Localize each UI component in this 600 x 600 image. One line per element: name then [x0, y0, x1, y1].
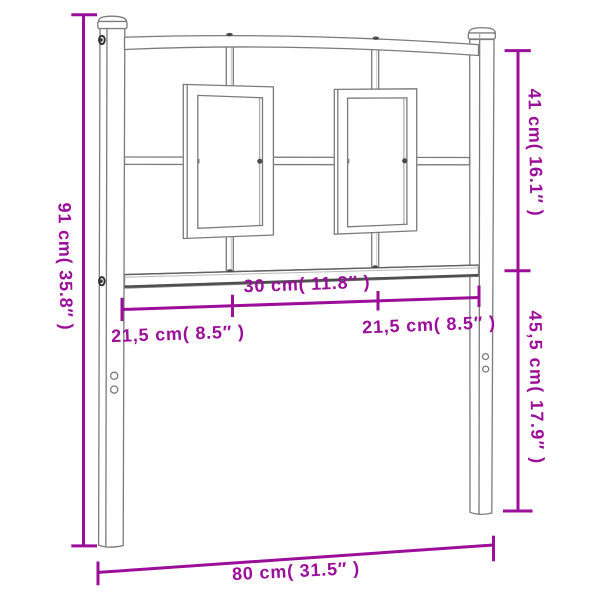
svg-text:91 cm( 35.8″ ): 91 cm( 35.8″ ) — [54, 202, 76, 330]
svg-text:45,5 cm( 17.9″ ): 45,5 cm( 17.9″ ) — [525, 310, 548, 464]
svg-text:41 cm( 16.1″ ): 41 cm( 16.1″ ) — [524, 88, 546, 216]
